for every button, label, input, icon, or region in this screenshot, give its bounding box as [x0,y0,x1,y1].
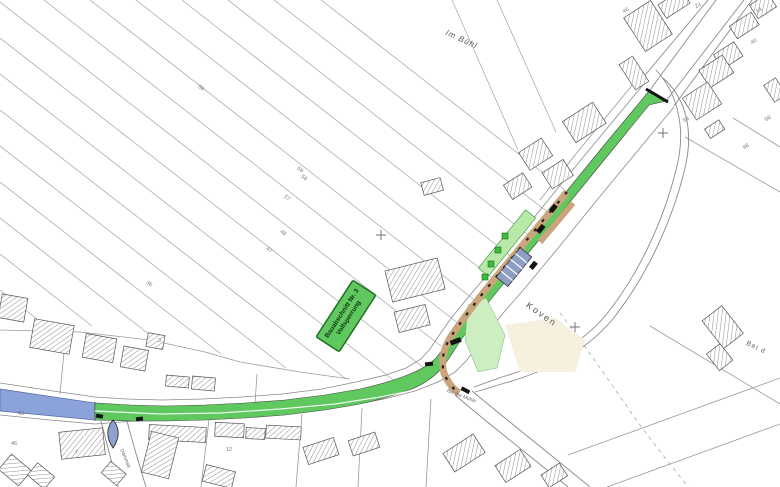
landscaping-cream-area [505,318,585,372]
traffic-island [108,420,119,448]
parcel-number-label: 3 [158,338,161,344]
plan-drawing [0,0,780,487]
parcel-number-label: 46 [11,441,17,447]
site-plan-canvas: Im Bühl Koven Bei d Bei der Mühle Dammst… [0,0,780,487]
road-section-blue [0,389,95,420]
parcel-number-label: 7 [75,450,78,456]
parcel-number-label: 43 [18,411,24,417]
parcel-number-label: 12 [226,447,232,453]
road-section-green [95,91,666,421]
